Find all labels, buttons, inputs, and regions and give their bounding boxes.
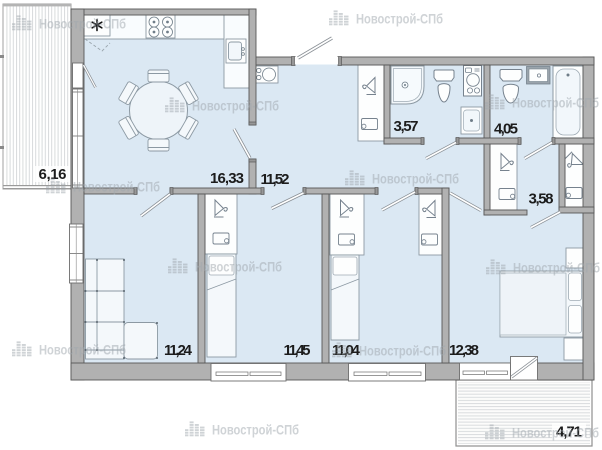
svg-text:12,38: 12,38 xyxy=(449,342,479,359)
svg-text:16,33: 16,33 xyxy=(210,170,244,187)
svg-text:11,04: 11,04 xyxy=(332,342,361,359)
svg-text:11,24: 11,24 xyxy=(164,342,193,359)
svg-text:6,16: 6,16 xyxy=(39,166,67,183)
svg-text:11,45: 11,45 xyxy=(284,342,311,359)
svg-text:3,57: 3,57 xyxy=(394,118,419,135)
svg-text:11,52: 11,52 xyxy=(261,171,290,188)
svg-text:3,58: 3,58 xyxy=(529,191,554,208)
svg-text:4,05: 4,05 xyxy=(494,121,518,138)
